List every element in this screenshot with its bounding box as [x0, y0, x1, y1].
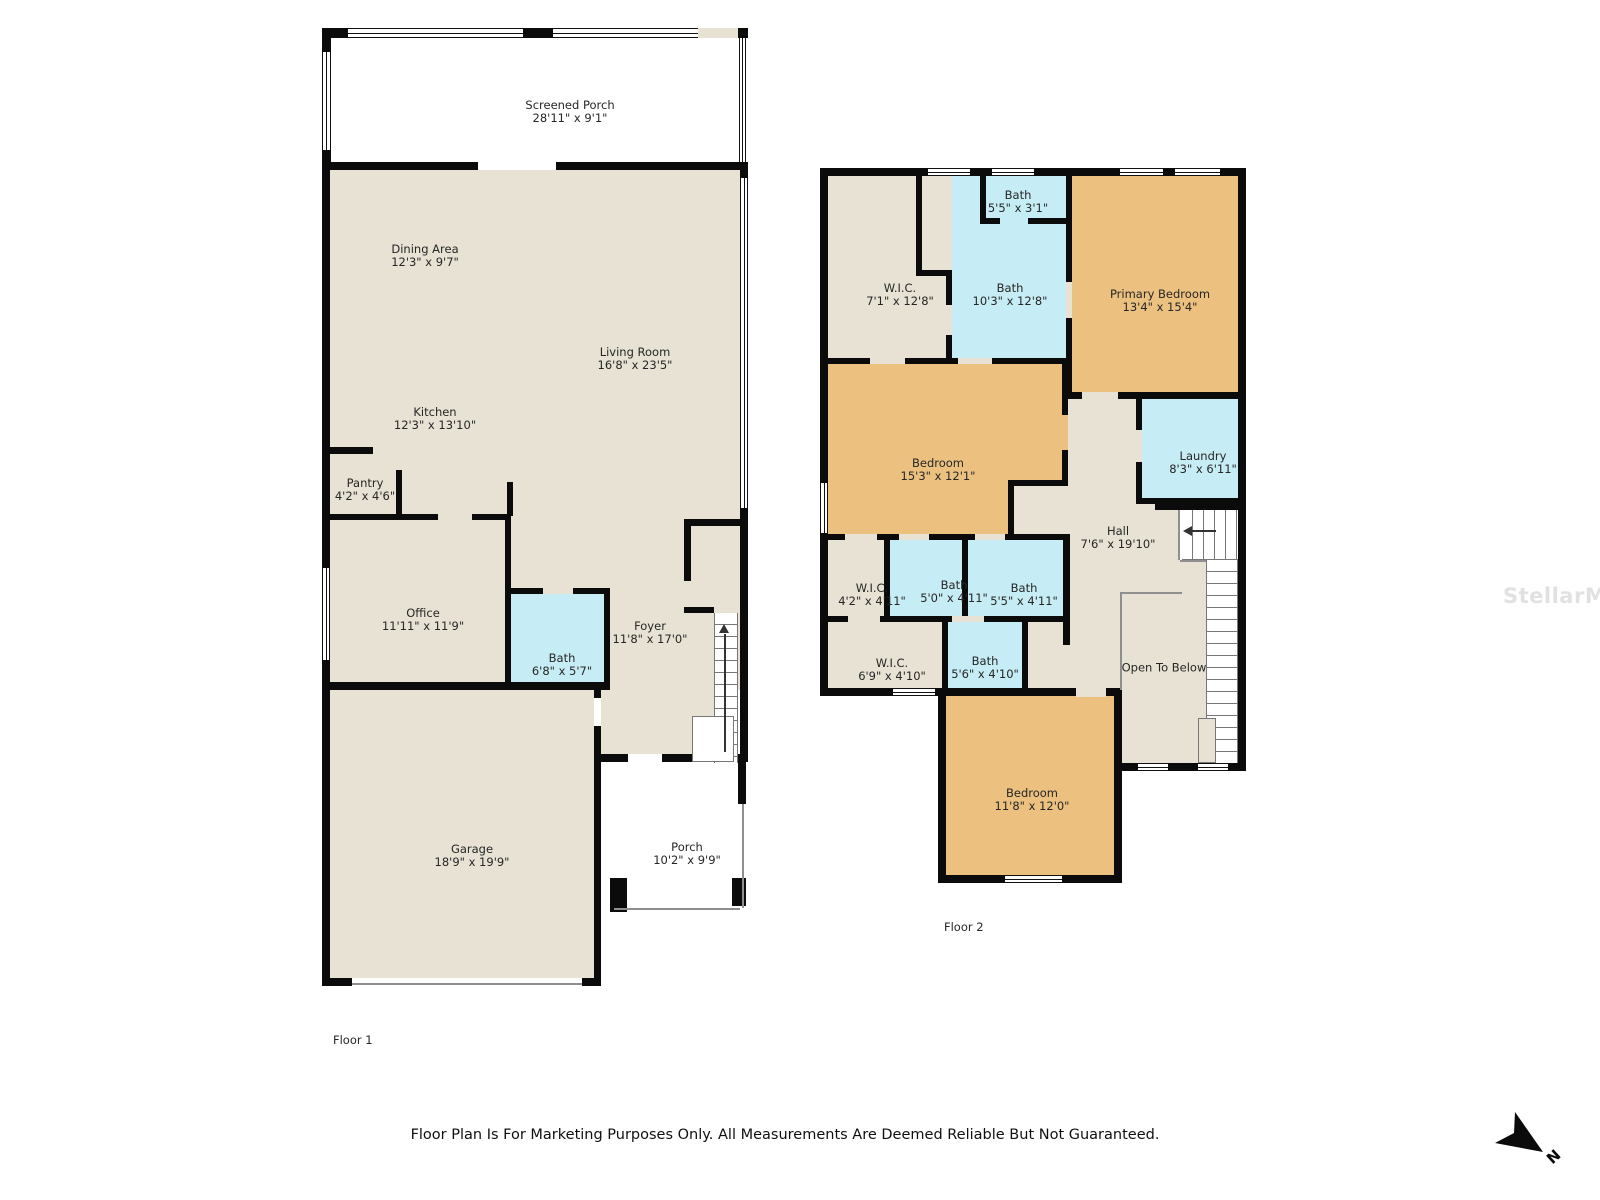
wall — [594, 682, 601, 698]
room-dimensions: 11'8" x 12'0" — [995, 800, 1070, 813]
wall — [946, 688, 1076, 696]
room-fill — [330, 690, 594, 978]
label-porch: Porch10'2" x 9'9" — [653, 841, 721, 867]
room-dimensions: 11'11" x 11'9" — [382, 620, 464, 633]
thin-line — [614, 908, 740, 910]
label-bedroom-11x12: Bedroom11'8" x 12'0" — [995, 787, 1070, 813]
window — [1175, 168, 1220, 176]
wall — [738, 762, 746, 804]
window — [1005, 875, 1062, 883]
stair-direction-arrow-icon — [1183, 526, 1192, 536]
room-fill — [1072, 176, 1238, 392]
label-kitchen: Kitchen12'3" x 13'10" — [394, 406, 476, 432]
window — [928, 168, 970, 176]
wall — [322, 170, 330, 568]
label-bath-5x4-b: Bath5'5" x 4'11" — [990, 582, 1058, 608]
label-wic-6x4: W.I.C.6'9" x 4'10" — [858, 657, 926, 683]
floor2-caption: Floor 2 — [944, 920, 984, 934]
room-name: Open To Below — [1122, 662, 1207, 675]
wall — [684, 607, 714, 613]
window — [348, 28, 523, 38]
wall — [1122, 763, 1138, 771]
wall — [1106, 688, 1114, 696]
wall — [505, 520, 511, 686]
room-dimensions: 16'8" x 23'5" — [598, 359, 673, 372]
wall — [1136, 399, 1142, 430]
stair-up-arrow-icon — [719, 624, 729, 633]
window — [1198, 763, 1228, 771]
compass-north-label: N — [1543, 1146, 1564, 1168]
room-dimensions: 11'8" x 17'0" — [613, 633, 688, 646]
room-dimensions: 28'11" x 9'1" — [525, 112, 614, 125]
label-office: Office11'11" x 11'9" — [382, 607, 464, 633]
label-wic-4x4: W.I.C.4'2" x 4'11" — [838, 582, 906, 608]
label-laundry: Laundry8'3" x 6'11" — [1169, 450, 1237, 476]
wall — [684, 519, 746, 526]
room-dimensions: 5'0" x 4'11" — [920, 592, 988, 605]
room-dimensions: 5'6" x 4'10" — [951, 668, 1019, 681]
room-fill — [828, 480, 1014, 534]
wall — [1022, 622, 1028, 688]
room-fill — [698, 28, 740, 38]
stellar-mls-watermark: StellarMLS — [1503, 584, 1600, 608]
label-bath-5x4-a: Bath5'0" x 4'11" — [920, 579, 988, 605]
room-dimensions: 12'3" x 13'10" — [394, 419, 476, 432]
room-dimensions: 5'5" x 4'11" — [990, 595, 1058, 608]
wall — [1228, 763, 1246, 771]
label-pantry: Pantry4'2" x 4'6" — [335, 477, 395, 503]
wall — [992, 358, 1066, 364]
wall — [1168, 763, 1198, 771]
wall — [322, 660, 330, 978]
room-dimensions: 4'2" x 4'6" — [335, 490, 395, 503]
wall — [916, 176, 922, 276]
label-wic-primary: W.I.C.7'1" x 12'8" — [866, 282, 934, 308]
wall — [328, 447, 373, 454]
wall — [738, 28, 748, 38]
window — [322, 52, 331, 150]
thin-line — [352, 983, 582, 985]
wall — [1114, 688, 1122, 883]
label-garage: Garage18'9" x 19'9" — [435, 843, 510, 869]
window — [1138, 763, 1168, 771]
wall — [322, 38, 331, 52]
label-foyer: Foyer11'8" x 17'0" — [613, 620, 688, 646]
door-opening — [478, 162, 556, 170]
label-primary-bedroom: Primary Bedroom13'4" x 15'4" — [1110, 288, 1210, 314]
room-dimensions: 13'4" x 15'4" — [1110, 301, 1210, 314]
room-dimensions: 7'6" x 19'10" — [1081, 538, 1156, 551]
label-hall: Hall7'6" x 19'10" — [1081, 525, 1156, 551]
wall — [580, 978, 601, 986]
room-dimensions: 6'9" x 4'10" — [858, 670, 926, 683]
thin-line — [1120, 592, 1122, 690]
wall — [938, 875, 1005, 883]
label-living-room: Living Room16'8" x 23'5" — [598, 346, 673, 372]
wall — [1066, 318, 1072, 358]
wall — [1008, 480, 1068, 486]
wall — [523, 28, 553, 38]
wall — [322, 978, 354, 986]
label-bedroom-15x12: Bedroom15'3" x 12'1" — [901, 457, 976, 483]
wall — [1062, 364, 1068, 415]
label-open-to-below: Open To Below — [1122, 662, 1207, 675]
room-fill — [1076, 688, 1106, 697]
label-bath-upper-small: Bath5'5" x 3'1" — [988, 189, 1048, 215]
wall — [929, 534, 975, 540]
wall — [1066, 176, 1072, 282]
wall — [938, 688, 946, 883]
wall — [322, 514, 438, 520]
north-compass-icon: N — [1485, 1098, 1575, 1178]
window — [893, 688, 935, 696]
floor1-caption: Floor 1 — [333, 1033, 373, 1047]
wall — [820, 358, 870, 364]
thin-line — [1178, 510, 1180, 560]
wall — [322, 682, 601, 690]
window — [740, 178, 748, 508]
wall — [322, 28, 348, 38]
label-dining-area: Dining Area12'3" x 9'7" — [391, 243, 459, 269]
room-dimensions: 12'3" x 9'7" — [391, 256, 459, 269]
wall — [740, 162, 748, 178]
room-dimensions: 18'9" x 19'9" — [435, 856, 510, 869]
window — [992, 168, 1034, 176]
room-dimensions: 8'3" x 6'11" — [1169, 463, 1237, 476]
compass-arrow — [1495, 1112, 1543, 1152]
room-dimensions: 6'8" x 5'7" — [532, 665, 592, 678]
thin-line — [1122, 592, 1182, 594]
window — [322, 568, 330, 660]
wall — [942, 622, 948, 688]
wall — [820, 533, 828, 690]
room-dimensions: 4'2" x 4'11" — [838, 595, 906, 608]
wall — [610, 878, 627, 912]
room-dimensions: 10'3" x 12'8" — [973, 295, 1048, 308]
label-bath-first-floor: Bath6'8" x 5'7" — [532, 652, 592, 678]
thin-line — [742, 804, 744, 908]
wall — [946, 276, 952, 305]
floor-plan-canvas: Floor 1 Floor 2 Floor Plan Is For Market… — [0, 0, 1600, 1200]
wall — [980, 176, 986, 224]
window — [820, 483, 828, 533]
wall — [986, 218, 1000, 224]
room-dimensions: 15'3" x 12'1" — [901, 470, 976, 483]
wall — [820, 176, 828, 483]
room-dimensions: 10'2" x 9'9" — [653, 854, 721, 867]
disclaimer-text: Floor Plan Is For Marketing Purposes Onl… — [400, 1127, 1170, 1143]
stair-landing — [692, 716, 734, 762]
thin-line — [1180, 560, 1206, 562]
wall — [1062, 875, 1122, 883]
wall — [828, 616, 848, 622]
label-bath-5x4-c: Bath5'6" x 4'10" — [951, 655, 1019, 681]
room-fill — [1122, 690, 1206, 763]
wall — [740, 508, 748, 762]
wall — [820, 688, 893, 696]
wall — [1118, 392, 1246, 399]
room-dimensions: 7'1" x 12'8" — [866, 295, 934, 308]
wall — [1005, 534, 1069, 540]
label-bath-primary: Bath10'3" x 12'8" — [973, 282, 1048, 308]
stair-direction-arrow — [724, 634, 726, 752]
wall — [684, 519, 691, 581]
wall — [507, 482, 513, 516]
wall — [1008, 486, 1014, 534]
wall — [604, 588, 610, 684]
wall — [1066, 392, 1082, 399]
window — [1120, 168, 1163, 176]
window — [553, 28, 698, 38]
stair-landing — [1198, 718, 1216, 763]
wall — [905, 358, 958, 364]
room-dimensions: 5'5" x 3'1" — [988, 202, 1048, 215]
stair-direction-arrow — [1192, 530, 1216, 532]
wall — [828, 534, 845, 540]
wall — [601, 754, 628, 762]
window — [739, 38, 746, 162]
wall — [396, 470, 402, 518]
wall — [511, 588, 543, 594]
wall — [1063, 534, 1070, 645]
wall — [594, 726, 601, 978]
wall — [1238, 168, 1246, 771]
label-screened-porch: Screened Porch28'11" x 9'1" — [525, 99, 614, 125]
